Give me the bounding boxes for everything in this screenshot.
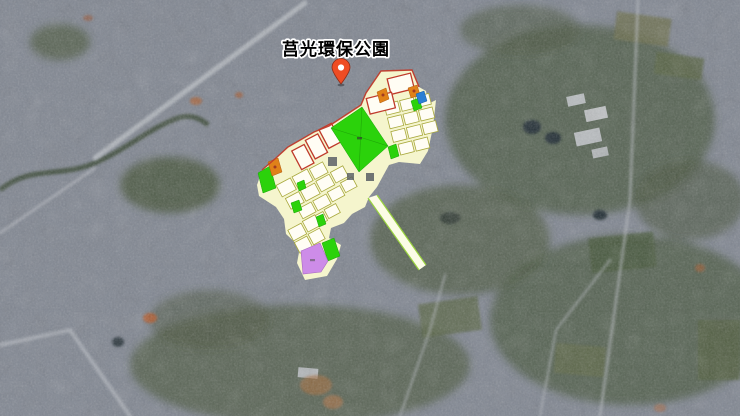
pin-dot — [338, 64, 344, 70]
map-annotations: 莒光環保公園 — [0, 0, 740, 416]
place-label: 莒光環保公園 — [282, 39, 390, 60]
map-viewport[interactable]: 莒光環保公園 — [0, 0, 740, 416]
location-pin-icon[interactable] — [332, 59, 350, 87]
pin-body — [332, 59, 350, 85]
